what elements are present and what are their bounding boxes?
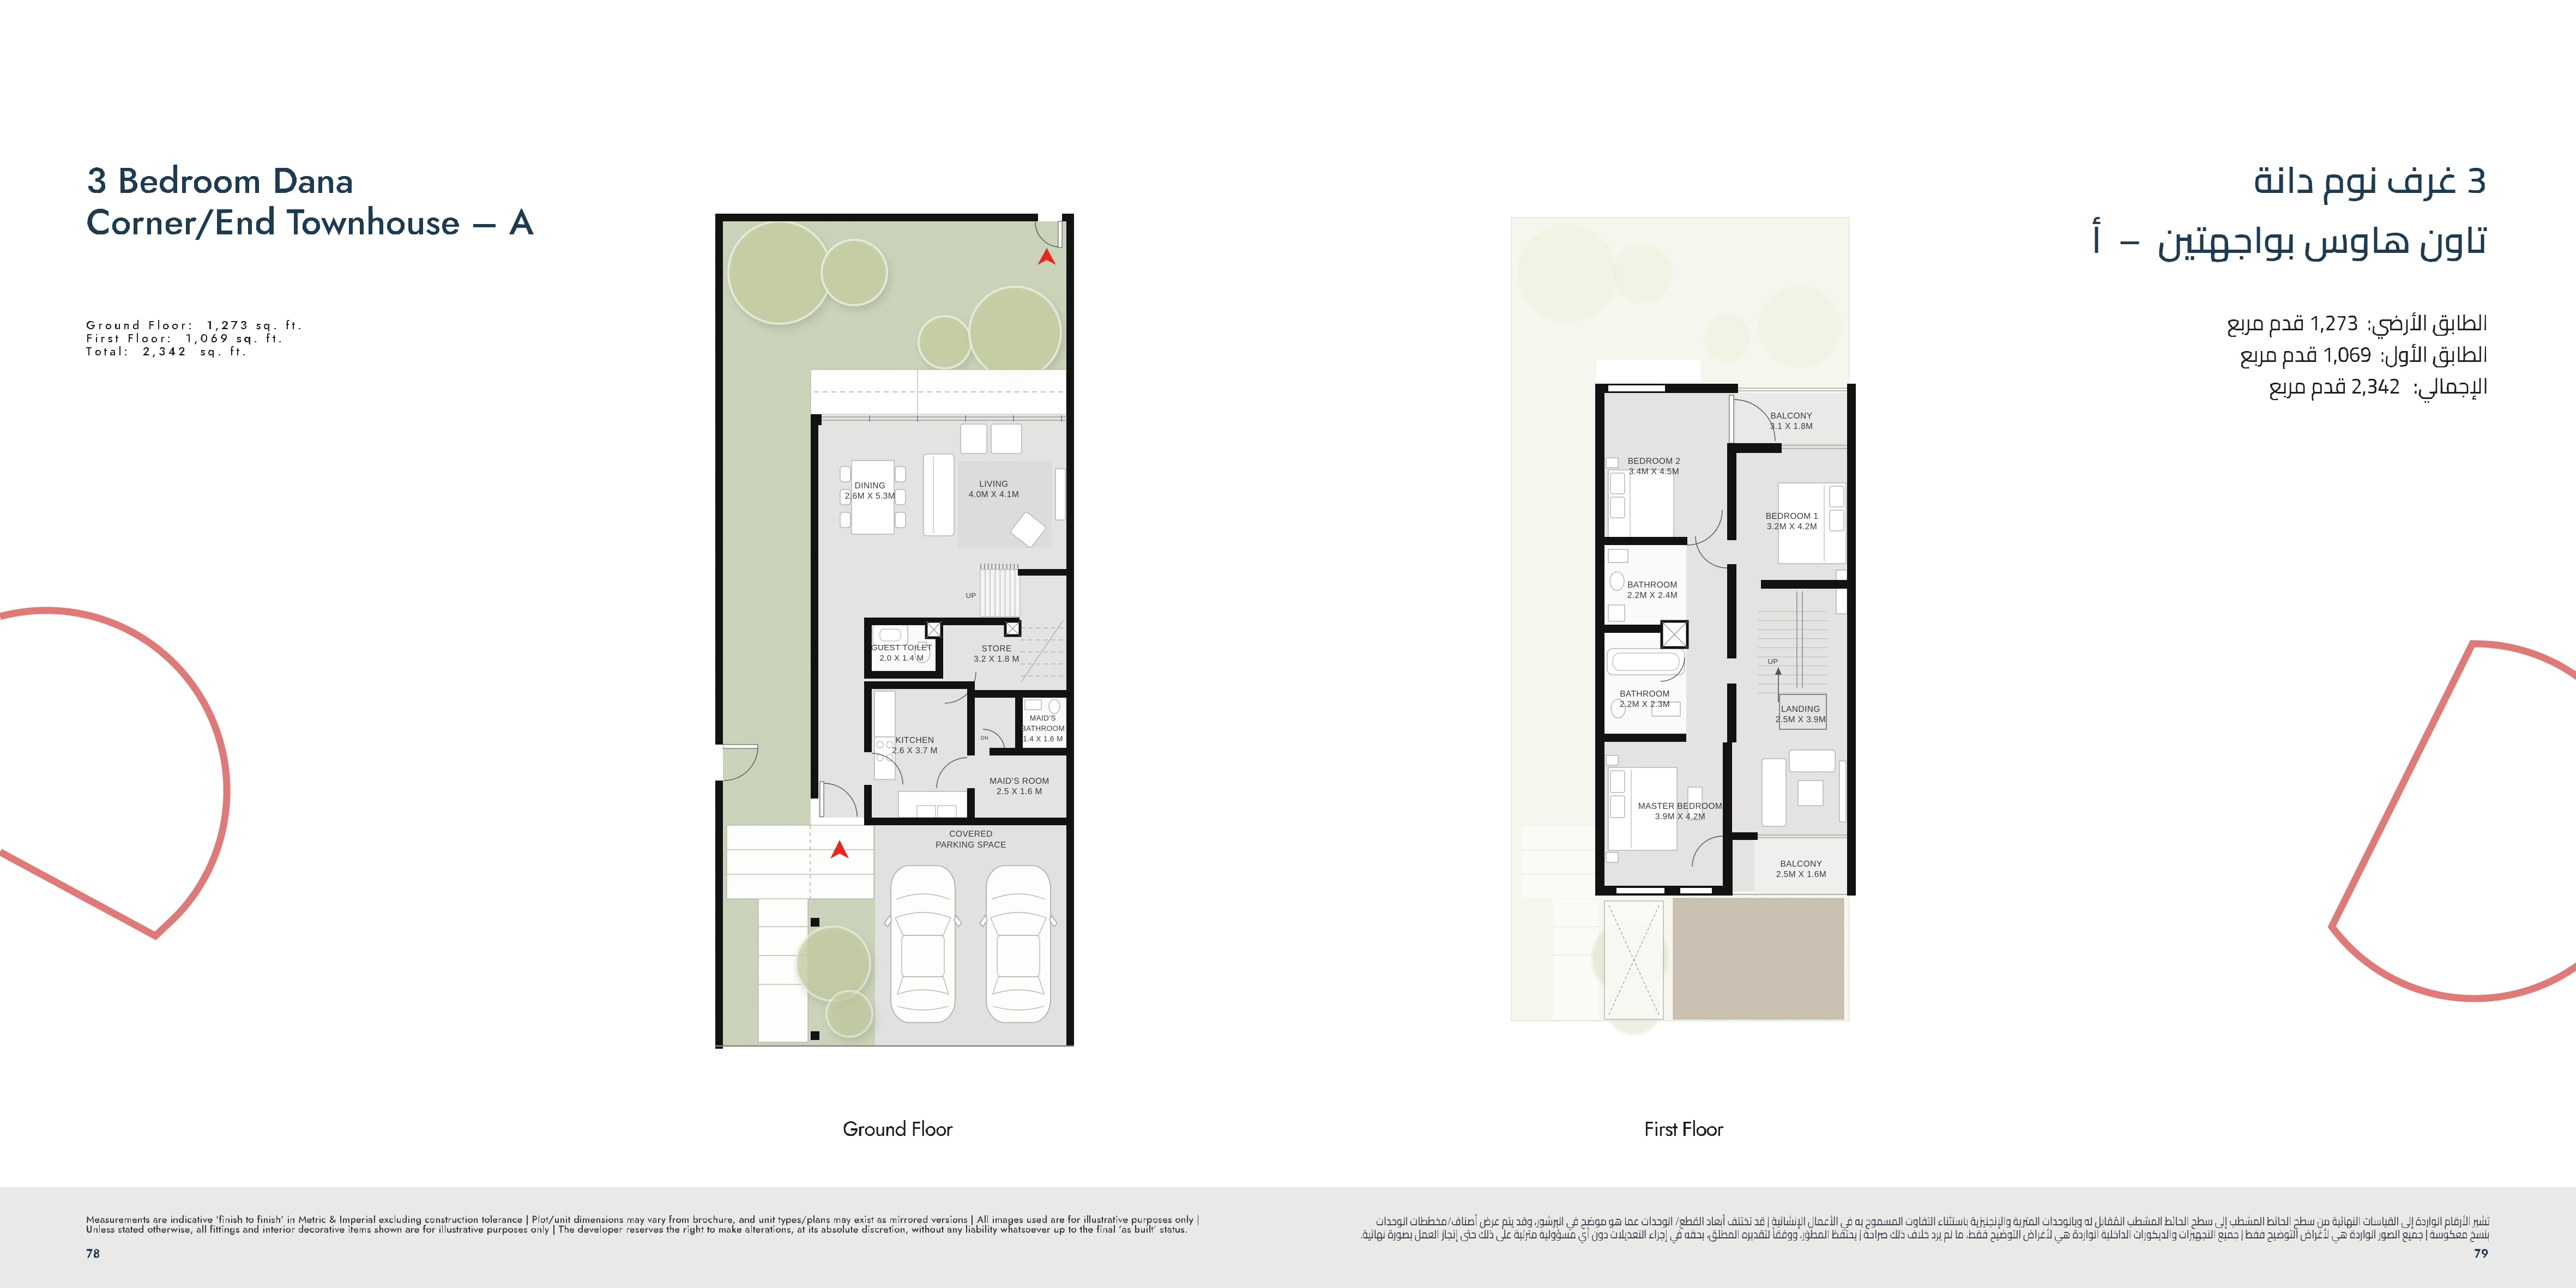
- svg-text:2.5M X 3.9M: 2.5M X 3.9M: [1776, 715, 1826, 724]
- svg-text:BATHROOM: BATHROOM: [1021, 724, 1065, 733]
- svg-text:MASTER BEDROOM: MASTER BEDROOM: [1638, 802, 1723, 811]
- svg-text:MAID’S ROOM: MAID’S ROOM: [990, 777, 1049, 786]
- svg-text:2.5M X 1.6M: 2.5M X 1.6M: [1776, 870, 1826, 879]
- svg-text:BATHROOM: BATHROOM: [1627, 580, 1678, 590]
- svg-text:STORE: STORE: [981, 644, 1011, 654]
- svg-text:3.4M X 4.5M: 3.4M X 4.5M: [1629, 467, 1679, 476]
- svg-text:3.1 X 1.8M: 3.1 X 1.8M: [1770, 422, 1813, 431]
- svg-text:DINING: DINING: [855, 481, 886, 491]
- svg-text:3.2M X 4.2M: 3.2M X 4.2M: [1767, 522, 1817, 531]
- svg-text:COVERED: COVERED: [949, 830, 992, 839]
- svg-text:2.5 X 1.6 M: 2.5 X 1.6 M: [997, 787, 1042, 796]
- svg-text:2.6 X 3.7 M: 2.6 X 3.7 M: [892, 746, 938, 755]
- svg-text:2.2M X 2.3M: 2.2M X 2.3M: [1620, 700, 1670, 709]
- svg-text:3.2 X 1.8 M: 3.2 X 1.8 M: [974, 655, 1019, 664]
- svg-text:LANDING: LANDING: [1781, 705, 1820, 714]
- svg-text:2.6M X 5.3M: 2.6M X 5.3M: [845, 492, 895, 501]
- svg-text:MAID’S: MAID’S: [1030, 714, 1056, 722]
- svg-text:2.2M X 2.4M: 2.2M X 2.4M: [1627, 591, 1678, 600]
- svg-text:BEDROOM 2: BEDROOM 2: [1628, 457, 1681, 466]
- svg-text:4.0M X 4.1M: 4.0M X 4.1M: [969, 490, 1019, 499]
- svg-text:UP: UP: [966, 591, 976, 600]
- svg-text:2.0 X 1.4 M: 2.0 X 1.4 M: [879, 654, 924, 663]
- svg-text:LIVING: LIVING: [979, 480, 1008, 489]
- svg-text:BALCONY: BALCONY: [1781, 860, 1823, 869]
- svg-text:3.9M X 4.2M: 3.9M X 4.2M: [1655, 812, 1705, 821]
- svg-text:BALCONY: BALCONY: [1771, 412, 1813, 421]
- svg-text:UP: UP: [1768, 657, 1778, 666]
- svg-text:GUEST TOILET: GUEST TOILET: [871, 643, 932, 652]
- svg-text:DN: DN: [981, 735, 989, 741]
- svg-text:1.4 X 1.6 M: 1.4 X 1.6 M: [1023, 735, 1063, 743]
- svg-text:PARKING SPACE: PARKING SPACE: [936, 840, 1006, 850]
- svg-text:KITCHEN: KITCHEN: [896, 736, 934, 745]
- svg-text:BEDROOM 1: BEDROOM 1: [1766, 512, 1819, 521]
- svg-text:BATHROOM: BATHROOM: [1620, 690, 1670, 699]
